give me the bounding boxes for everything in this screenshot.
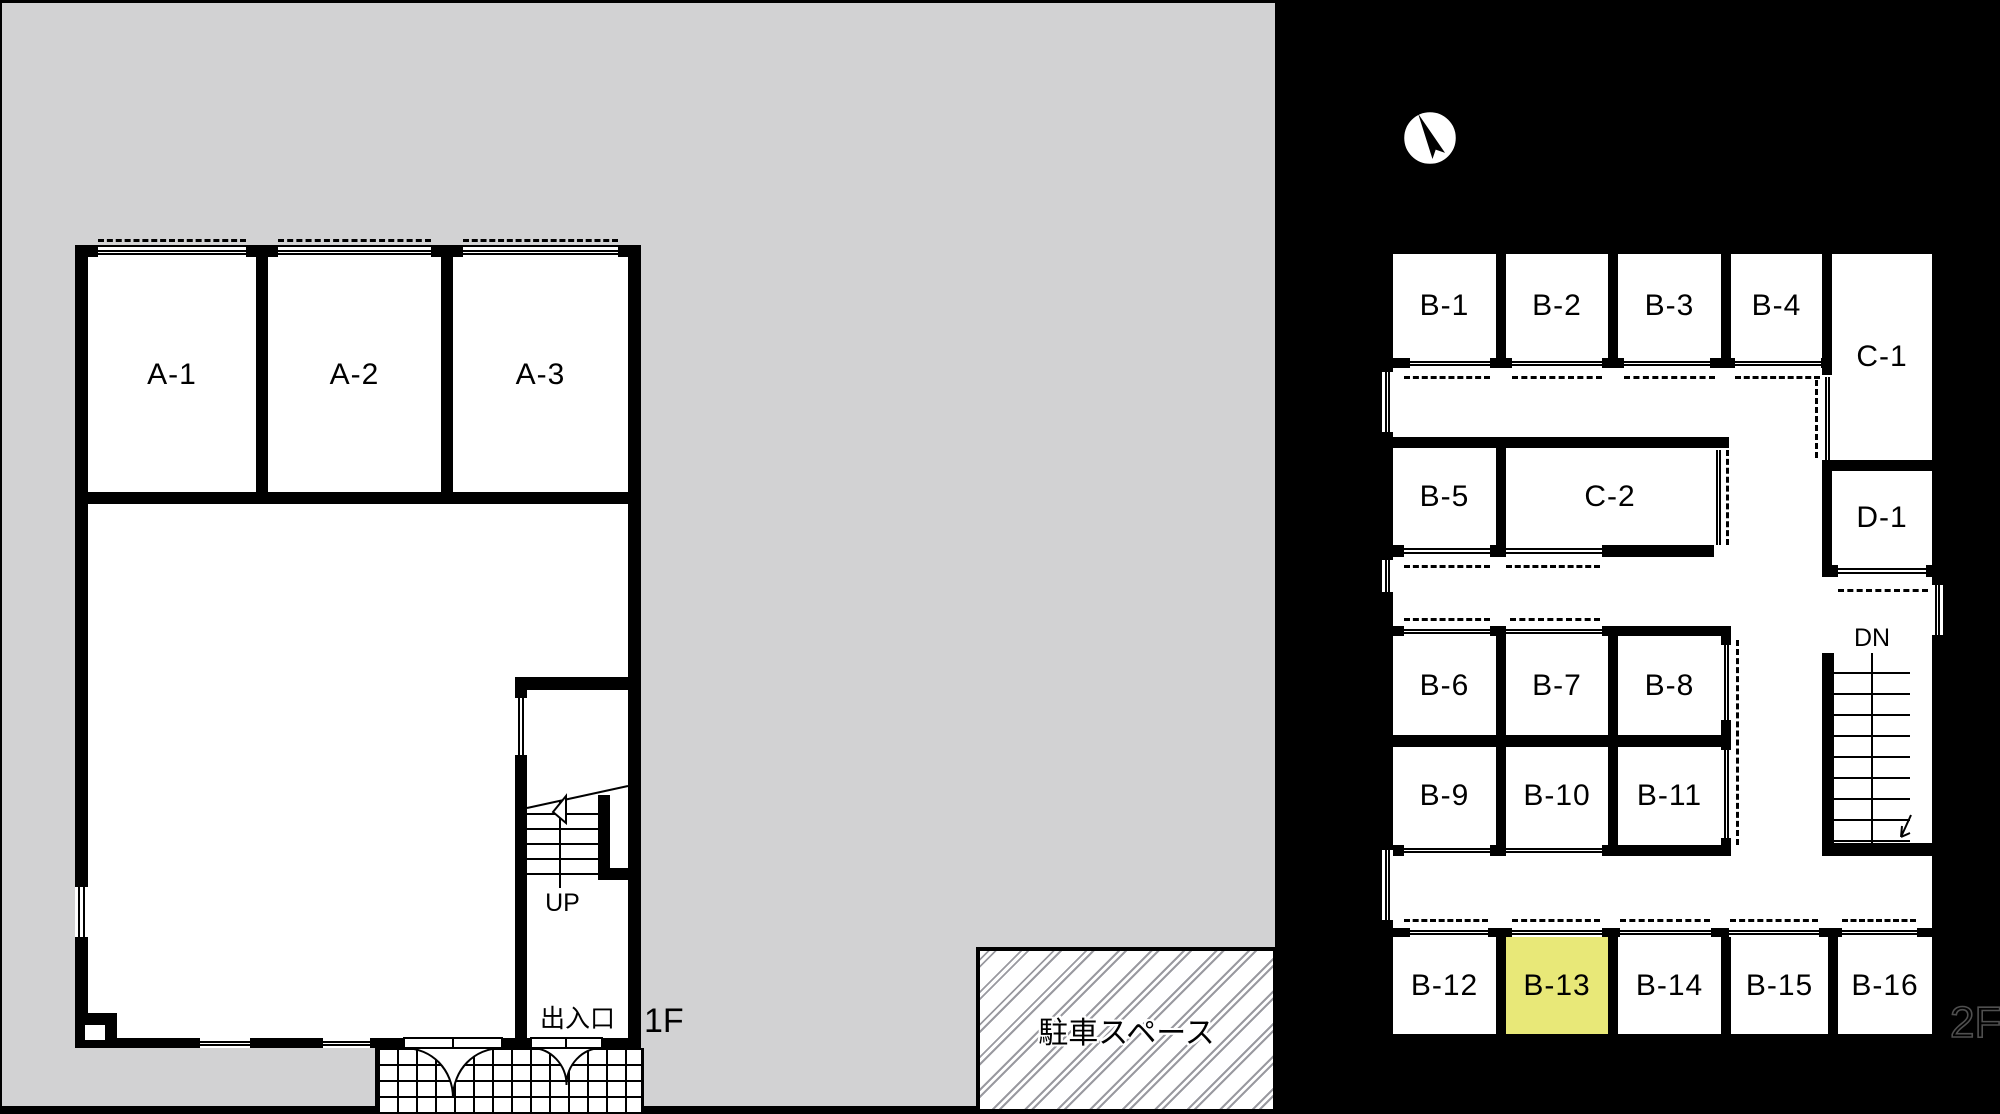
room-label: B-7 (1532, 669, 1582, 703)
dashed-line (1624, 376, 1715, 379)
room-label: C-2 (1584, 480, 1635, 514)
room-d-1[interactable]: D-1 (1832, 471, 1932, 565)
window-strip (1838, 565, 1926, 577)
window-strip (1404, 626, 1490, 636)
compass-label: N (1394, 75, 1422, 108)
dashed-line (1506, 565, 1600, 568)
window-strip (1382, 372, 1393, 432)
parking-label: 駐車スペース (1038, 1008, 1214, 1052)
dashed-line (1404, 919, 1488, 922)
wall (1393, 735, 1731, 747)
room-b-14[interactable]: B-14 (1618, 937, 1721, 1034)
window-strip (1721, 645, 1731, 720)
dashed-line (1404, 376, 1490, 379)
room-label: B-13 (1523, 969, 1590, 1003)
room-c-1[interactable]: C-1 (1832, 254, 1932, 460)
wall (1828, 937, 1838, 1034)
floorplan-canvas: A-1 A-2 A-3 UP 出入口 1F (0, 0, 2000, 1114)
dashed-line (1736, 640, 1739, 845)
room-label: B-10 (1523, 779, 1590, 813)
room-label: B-12 (1411, 969, 1478, 1003)
room-label: B-3 (1645, 289, 1695, 323)
room-b-5[interactable]: B-5 (1393, 448, 1496, 545)
wall (1496, 448, 1506, 557)
dashed-line (1838, 589, 1928, 592)
window-strip (1382, 850, 1393, 920)
window-strip (1624, 358, 1710, 368)
room-b-4[interactable]: B-4 (1731, 254, 1822, 358)
window-strip (1404, 845, 1490, 856)
room-b-16[interactable]: B-16 (1838, 937, 1932, 1034)
dashed-line (1404, 565, 1490, 568)
room-label: B-5 (1420, 480, 1470, 514)
parking-space: 駐車スペース (976, 947, 1277, 1113)
dashed-line (1735, 376, 1820, 379)
window-strip (1729, 928, 1819, 937)
window-strip (1620, 928, 1711, 937)
window-strip (1506, 845, 1602, 856)
dashed-line (1620, 919, 1710, 922)
wall (1822, 653, 1834, 843)
wall (1496, 254, 1506, 358)
wall (1822, 460, 1943, 471)
stair-arrow (1890, 810, 1918, 844)
window-strip (1410, 928, 1488, 937)
room-label: C-1 (1856, 340, 1907, 374)
room-label: B-1 (1420, 289, 1470, 323)
dashed-line (1404, 618, 1490, 621)
window-strip (1842, 928, 1917, 937)
dashed-line (1730, 919, 1818, 922)
window-strip (1512, 928, 1602, 937)
window-strip (1932, 585, 1943, 635)
room-c-2[interactable]: C-2 (1506, 448, 1714, 545)
window-strip (1822, 377, 1832, 460)
room-label: B-8 (1645, 669, 1695, 703)
room-b-6[interactable]: B-6 (1393, 636, 1496, 735)
wall (1382, 243, 1943, 254)
room-b-3[interactable]: B-3 (1618, 254, 1721, 358)
room-b-8[interactable]: B-8 (1618, 636, 1721, 735)
wall (1721, 254, 1731, 358)
window-strip (1382, 560, 1393, 592)
room-label: B-2 (1532, 289, 1582, 323)
window-strip (1721, 750, 1731, 838)
dashed-line (1815, 380, 1818, 458)
room-b-15[interactable]: B-15 (1731, 937, 1828, 1034)
room-b-13-highlighted[interactable]: B-13 (1506, 937, 1608, 1034)
room-b-9[interactable]: B-9 (1393, 747, 1496, 845)
room-label: D-1 (1856, 501, 1907, 535)
room-label: B-15 (1746, 969, 1813, 1003)
wall (1721, 937, 1731, 1034)
wall (1393, 437, 1729, 448)
room-b-1[interactable]: B-1 (1393, 254, 1496, 358)
room-label: B-16 (1851, 969, 1918, 1003)
window-strip (1506, 626, 1602, 636)
room-label: B-6 (1420, 669, 1470, 703)
room-label: B-14 (1636, 969, 1703, 1003)
room-b-2[interactable]: B-2 (1506, 254, 1608, 358)
floor-label-2f: 2F (1950, 998, 2000, 1048)
dashed-line (1510, 618, 1600, 621)
room-label: B-11 (1637, 779, 1702, 813)
room-b-11[interactable]: B-11 (1618, 747, 1721, 845)
dashed-line (1512, 919, 1600, 922)
dashed-line (1842, 919, 1916, 922)
wall (1382, 1034, 1943, 1045)
room-label: B-9 (1420, 779, 1470, 813)
window-strip (1506, 545, 1602, 557)
window-strip (1404, 545, 1490, 557)
room-b-7[interactable]: B-7 (1506, 636, 1608, 735)
wall (1822, 843, 1943, 856)
window-strip (1714, 450, 1722, 545)
room-b-10[interactable]: B-10 (1506, 747, 1608, 845)
room-label: B-4 (1752, 289, 1802, 323)
wall (1822, 471, 1832, 577)
stair-direction-label-2f: DN (1834, 624, 1910, 652)
wall (1822, 254, 1832, 375)
compass-north-icon: N (1385, 58, 1485, 173)
wall (1608, 937, 1618, 1034)
window-strip (1512, 358, 1602, 368)
wall (1496, 937, 1506, 1034)
dashed-line (1726, 450, 1729, 545)
wall (1932, 254, 1943, 1034)
window-strip (1735, 358, 1821, 368)
wall (1608, 254, 1618, 358)
dashed-line (1512, 376, 1602, 379)
room-b-12[interactable]: B-12 (1393, 937, 1496, 1034)
window-strip (1410, 358, 1490, 368)
